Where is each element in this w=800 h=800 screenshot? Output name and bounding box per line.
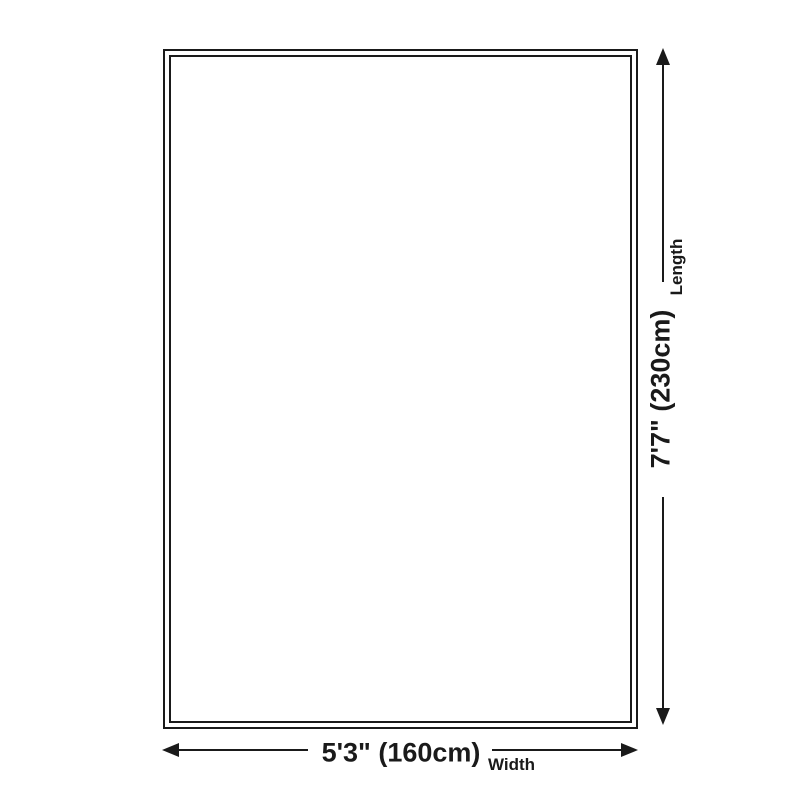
length-dimension-value: 7'7" (230cm) xyxy=(646,310,677,469)
width-arrow-line-left xyxy=(177,749,308,751)
width-arrow-right-icon xyxy=(621,743,638,757)
width-axis-label: Width xyxy=(488,755,535,775)
rug-inner-border xyxy=(169,55,632,723)
length-arrow-down-icon xyxy=(656,708,670,725)
rug-size-diagram: Length 7'7" (230cm) 5'3" (160cm) Width xyxy=(0,0,800,800)
rug-outline xyxy=(163,49,638,729)
length-arrow-line-bottom xyxy=(662,497,664,709)
length-axis-label: Length xyxy=(667,239,687,296)
width-dimension-value: 5'3" (160cm) xyxy=(322,738,481,769)
width-arrow-line-right xyxy=(492,749,622,751)
length-arrow-line-top xyxy=(662,62,664,282)
